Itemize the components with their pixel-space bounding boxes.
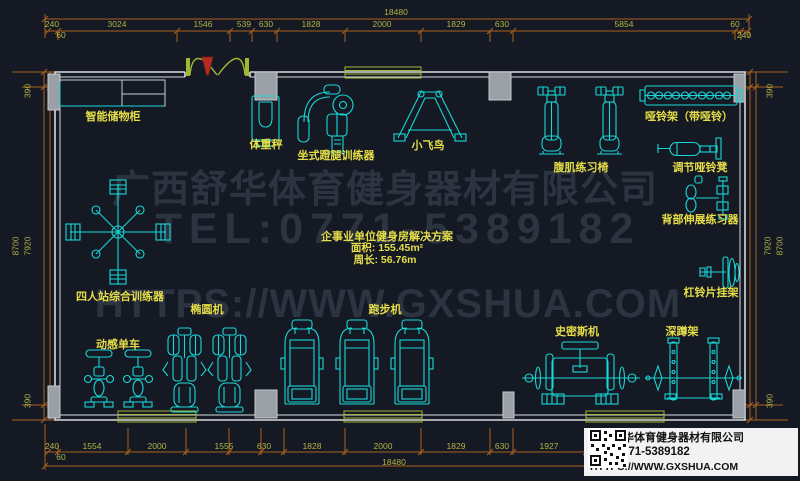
label-squat-rack: 深蹲架: [666, 326, 699, 338]
dim-bottom: 60: [56, 453, 65, 462]
dim-top: 60: [730, 20, 739, 29]
dumbbell-rack-icon: [640, 86, 742, 105]
dim-right: 390: [766, 84, 775, 98]
back-extension-icon: [686, 176, 728, 219]
label-adjustable-bench: 调节哑铃凳: [673, 162, 728, 174]
dim-bottom: 1927: [540, 442, 559, 451]
dim-top: 60: [56, 31, 65, 40]
spin-bike-icon: [85, 350, 114, 407]
solution-perimeter: 周长: 56.76m: [353, 252, 416, 267]
dim-top: 630: [495, 20, 509, 29]
dim-bottom: 630: [257, 442, 271, 451]
storage-cabinet-icon: [60, 80, 165, 106]
label-plate-rack: 杠铃片挂架: [684, 287, 739, 299]
dim-left: 390: [24, 394, 33, 408]
dim-bottom: 1828: [303, 442, 322, 451]
plate-rack-icon: [700, 257, 739, 288]
adjustable-bench-icon: [658, 138, 721, 159]
dim-top: 2000: [373, 20, 392, 29]
label-smith-machine: 史密斯机: [555, 326, 599, 338]
spin-bike-icon: [124, 350, 153, 407]
dim-top: 240: [45, 20, 59, 29]
dim-left: 8700: [12, 237, 21, 256]
dim-bottom: 1829: [447, 442, 466, 451]
dim-top: 1546: [194, 20, 213, 29]
dim-bottom: 240: [45, 442, 59, 451]
label-fly-machine: 小飞鸟: [412, 140, 445, 152]
dim-bottom: 1555: [215, 442, 234, 451]
dim-bottom-total: 18480: [382, 458, 406, 467]
dim-bottom: 630: [495, 442, 509, 451]
dim-top: 1828: [302, 20, 321, 29]
leg-press-icon: [298, 85, 353, 152]
qr-code-icon: [588, 428, 628, 468]
label-multi-station: 四人站综合训练器: [76, 291, 164, 303]
dim-bottom: 1554: [83, 442, 102, 451]
label-spin-bike: 动感单车: [96, 339, 140, 351]
multi-station-icon: [66, 180, 170, 284]
dim-top: 3024: [108, 20, 127, 29]
company-info-box: 广西舒华体育健身器材有限公司 TEL:0771-5389182 HTTPS://…: [584, 428, 798, 476]
dim-right: 390: [766, 394, 775, 408]
label-leg-press: 坐式蹬腿训练器: [298, 150, 375, 162]
label-treadmill: 跑步机: [369, 304, 402, 316]
elliptical-icon: [208, 328, 251, 412]
ab-chair-icon: [596, 87, 623, 154]
label-ab-chair: 腹肌练习椅: [554, 162, 609, 174]
dim-top: 539: [237, 20, 251, 29]
squat-rack-icon: [645, 338, 742, 400]
dim-top: 240: [737, 31, 751, 40]
treadmill-icon: [281, 320, 323, 404]
treadmill-icon: [336, 320, 378, 404]
ab-chair-icon: [538, 87, 565, 154]
dim-top: 1829: [447, 20, 466, 29]
dim-left: 390: [24, 84, 33, 98]
dim-bottom: 2000: [374, 442, 393, 451]
dim-top: 630: [259, 20, 273, 29]
dim-top: 5854: [615, 20, 634, 29]
label-dumbbell-rack: 哑铃架（带哑铃）: [645, 111, 733, 123]
smith-machine-icon: [522, 342, 640, 404]
dim-left: 7920: [24, 237, 33, 256]
elliptical-icon: [163, 328, 206, 412]
label-storage-cabinet: 智能储物柜: [86, 111, 141, 123]
door-marker-icon: [202, 57, 213, 75]
entrance-door: [186, 57, 249, 76]
label-weight-scale: 体重秤: [250, 139, 283, 151]
dim-top-total: 18480: [384, 8, 408, 17]
cad-floorplan-view: 广西舒华体育健身器材有限公司 TEL:0771-5389182 HTTPS://…: [0, 0, 800, 481]
dim-right: 7920: [764, 237, 773, 256]
fly-machine-icon: [394, 91, 466, 141]
label-elliptical: 椭圆机: [191, 304, 224, 316]
label-back-extension: 背部伸展练习器: [662, 214, 739, 226]
dim-bottom: 2000: [148, 442, 167, 451]
dim-right: 8700: [776, 237, 785, 256]
treadmill-icon: [391, 320, 433, 404]
